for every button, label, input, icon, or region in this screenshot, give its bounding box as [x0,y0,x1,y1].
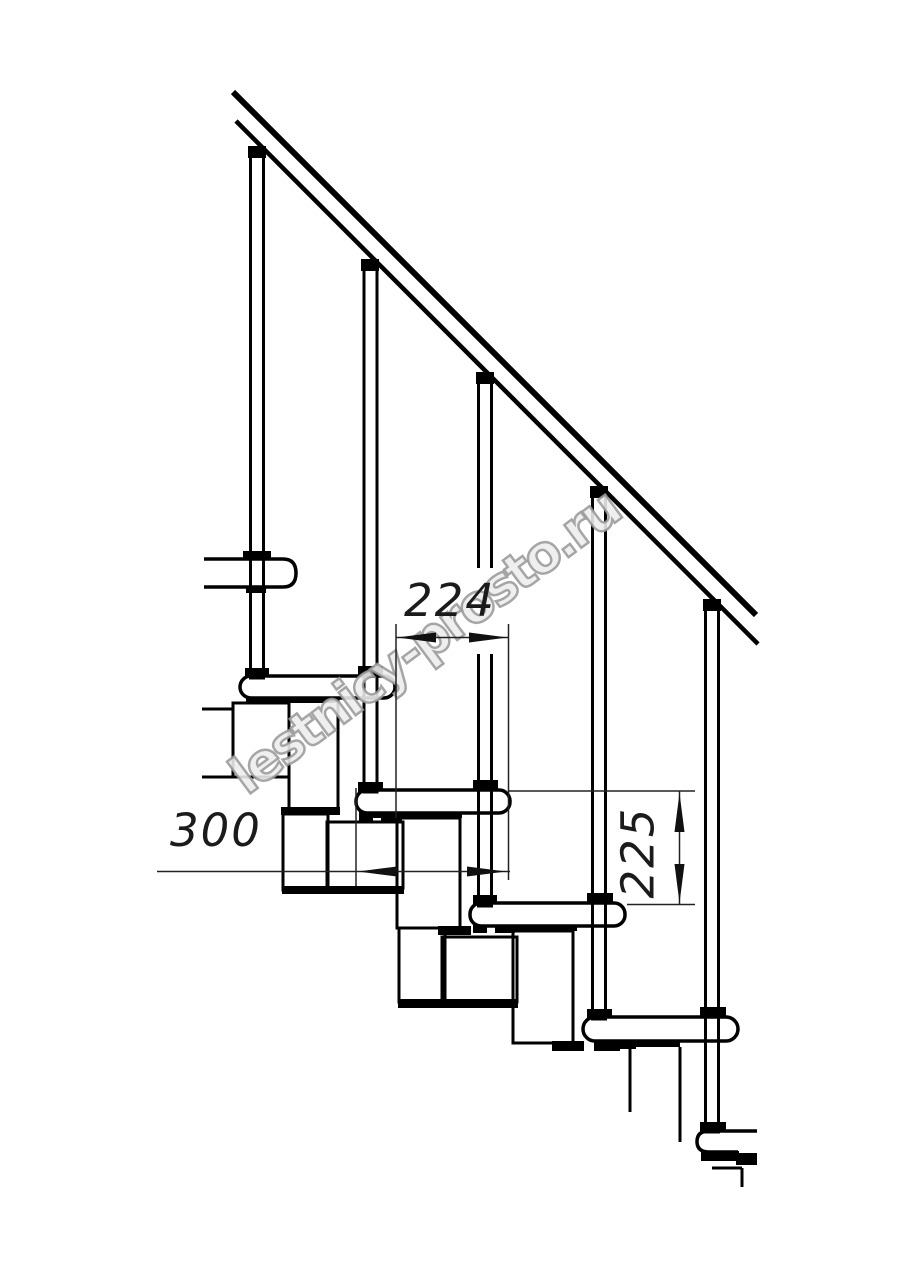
dimension-going-label: 224 [404,578,496,623]
dimension-step-height-label: 225 [616,807,661,899]
dimension-annotations [0,0,914,1280]
dimension-tread-depth-label: 300 [170,808,262,853]
technical-drawing-canvas: lestnicy-prosto.ru 224 300 225 [0,0,914,1280]
